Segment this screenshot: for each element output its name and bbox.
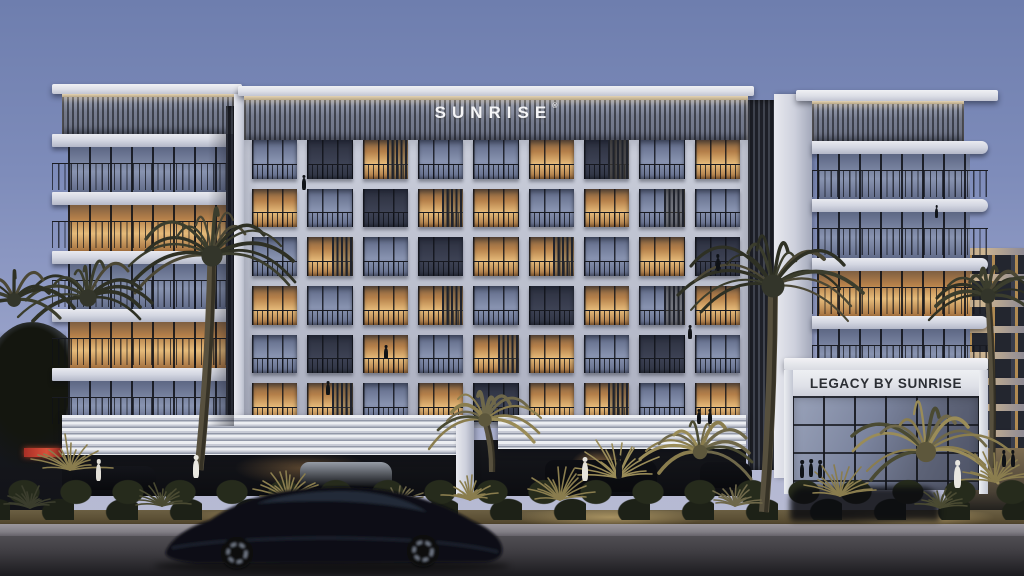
pavilion-roof-slab: [784, 358, 988, 370]
person-head: [818, 460, 822, 464]
balcony-railing: [363, 212, 408, 227]
window-cell: [695, 286, 740, 325]
balcony-slab: [52, 134, 234, 147]
person-figure: [302, 178, 306, 190]
balcony-railing: [812, 170, 988, 197]
person-figure: [1002, 454, 1006, 467]
balcony-floor: [812, 141, 988, 199]
balcony-railing: [307, 310, 352, 325]
window-cell: [418, 140, 463, 179]
window-cell: [418, 335, 463, 374]
person-head: [935, 205, 938, 208]
palm-frond: [14, 272, 43, 300]
person-figure: [616, 460, 622, 479]
balcony-railing: [252, 212, 297, 227]
balcony-railing: [812, 228, 988, 255]
window-cell: [473, 140, 518, 179]
window-cell: [584, 335, 629, 374]
balcony-railing: [307, 164, 352, 179]
balcony-railing: [639, 310, 684, 325]
balcony-railing: [529, 261, 574, 276]
person-head: [688, 325, 691, 328]
window-cell: [418, 237, 463, 276]
window-cell: [473, 286, 518, 325]
window-cell: [363, 286, 408, 325]
window-cell: [639, 140, 684, 179]
balcony-slab: [52, 309, 234, 322]
window-cell: [473, 189, 518, 228]
window-cell: [529, 237, 574, 276]
person-figure: [1011, 454, 1015, 467]
person-figure: [954, 466, 961, 488]
balcony-railing: [52, 280, 234, 307]
balcony-slab: [52, 251, 234, 264]
connector-louvers: [748, 100, 774, 470]
window-cell: [473, 335, 518, 374]
person-figure: [697, 412, 701, 424]
window-cell: [307, 237, 352, 276]
window-cell: [252, 335, 297, 374]
balcony-railing: [363, 358, 408, 373]
balcony-railing: [52, 221, 234, 248]
window-cell: [252, 189, 297, 228]
window-cell: [252, 140, 297, 179]
center-window-grid: [244, 140, 748, 428]
balcony-railing: [252, 261, 297, 276]
road: [0, 536, 1024, 576]
balcony-railing: [307, 358, 352, 373]
balcony-railing: [529, 310, 574, 325]
window-cell: [639, 335, 684, 374]
balcony-railing: [695, 164, 740, 179]
balcony-floor: [52, 251, 234, 309]
balcony-slab: [812, 316, 988, 329]
window-cell: [529, 189, 574, 228]
balcony-railing: [52, 338, 234, 365]
window-cell: [252, 237, 297, 276]
balcony-railing: [418, 310, 463, 325]
balcony-railing: [695, 358, 740, 373]
person-figure: [384, 348, 388, 359]
window-cell: [252, 286, 297, 325]
palm-frond: [0, 300, 14, 327]
palm-frond: [14, 286, 49, 300]
balcony-railing: [418, 164, 463, 179]
balcony-railing: [473, 261, 518, 276]
window-cell: [695, 335, 740, 374]
balcony-railing: [529, 358, 574, 373]
balcony-railing: [52, 163, 234, 190]
podium-slat-band: [62, 415, 456, 455]
roof-sign-text: SUNRISE: [435, 103, 553, 122]
balcony-railing: [529, 212, 574, 227]
window-cell: [695, 189, 740, 228]
balcony-floor: [52, 309, 234, 367]
person-figure: [582, 462, 588, 481]
balcony-floor: [812, 199, 988, 257]
window-cell: [529, 335, 574, 374]
balcony-floor: [812, 258, 988, 316]
background-car-blur: [790, 487, 940, 521]
window-cell: [418, 189, 463, 228]
right-wing-roof-cornice: [796, 90, 998, 101]
balcony-railing: [529, 164, 574, 179]
person-head: [955, 460, 961, 466]
right-wing-parapet-slats: [812, 104, 964, 141]
balcony-railing: [695, 212, 740, 227]
window-cell: [307, 335, 352, 374]
balcony-railing: [473, 358, 518, 373]
window-cell: [639, 237, 684, 276]
balcony-slab: [52, 192, 234, 205]
window-cell: [529, 140, 574, 179]
balcony-railing: [584, 310, 629, 325]
window-cell: [363, 140, 408, 179]
balcony-railing: [639, 358, 684, 373]
balcony-railing: [639, 261, 684, 276]
palm-frond: [0, 282, 14, 300]
window-cell: [584, 286, 629, 325]
person-head: [326, 381, 329, 384]
person-figure: [708, 412, 712, 424]
person-figure: [688, 328, 692, 339]
dusk-building-scene: SUNRISE® LEGACY BY SUNRISE: [0, 0, 1024, 576]
person-figure: [193, 460, 199, 478]
balcony-railing: [307, 261, 352, 276]
person-figure: [716, 258, 720, 271]
window-cell: [695, 140, 740, 179]
window-cell: [363, 189, 408, 228]
balcony-slab: [52, 368, 234, 381]
balcony-railing: [639, 164, 684, 179]
balcony-railing: [418, 261, 463, 276]
window-cell: [473, 237, 518, 276]
window-cell: [584, 189, 629, 228]
balcony-slab: [812, 258, 988, 271]
window-cell: [307, 189, 352, 228]
balcony-floor: [52, 134, 234, 192]
person-head: [384, 345, 387, 348]
red-shop-sign: [24, 448, 62, 457]
balcony-railing: [584, 358, 629, 373]
balcony-railing: [473, 212, 518, 227]
balcony-railing: [252, 358, 297, 373]
window-cell: [307, 140, 352, 179]
balcony-railing: [473, 310, 518, 325]
left-wing-balconies: [52, 134, 234, 426]
palm-crown: [7, 293, 21, 307]
balcony-railing: [473, 164, 518, 179]
balcony-railing: [363, 164, 408, 179]
balcony-railing: [363, 261, 408, 276]
balcony-railing: [307, 212, 352, 227]
roof-sign-mark: ®: [552, 103, 557, 110]
person-head: [617, 455, 622, 460]
balcony-railing: [639, 212, 684, 227]
balcony-railing: [418, 358, 463, 373]
person-figure: [96, 464, 101, 481]
person-head: [809, 459, 813, 463]
balcony-railing: [584, 164, 629, 179]
palm-frond: [0, 293, 14, 311]
balcony-railing: [252, 164, 297, 179]
balcony-railing: [695, 310, 740, 325]
left-wing-roof-cornice: [52, 84, 242, 94]
person-figure: [935, 208, 938, 218]
balcony-railing: [252, 310, 297, 325]
pavilion-fascia: LEGACY BY SUNRISE: [786, 370, 986, 396]
window-cell: [584, 140, 629, 179]
person-head: [800, 460, 804, 464]
window-cell: [639, 189, 684, 228]
balcony-railing: [584, 212, 629, 227]
balcony-floor: [52, 192, 234, 250]
person-head: [583, 457, 588, 462]
palm-frond: [14, 271, 15, 300]
balcony-railing: [363, 310, 408, 325]
entrance-sign: LEGACY BY SUNRISE: [810, 376, 962, 391]
window-cell: [639, 286, 684, 325]
window-cell: [307, 286, 352, 325]
window-cell: [584, 237, 629, 276]
person-figure: [326, 384, 330, 395]
balcony-slab: [812, 141, 988, 154]
window-cell: [529, 286, 574, 325]
balcony-railing: [418, 212, 463, 227]
roof-sign: SUNRISE®: [244, 103, 748, 123]
window-cell: [363, 237, 408, 276]
balcony-slab: [812, 199, 988, 212]
person-head: [194, 455, 199, 460]
left-wing-parapet-slats: [62, 97, 234, 134]
window-cell: [418, 286, 463, 325]
palm-frond: [0, 280, 14, 300]
balcony-railing: [812, 287, 988, 314]
balcony-railing: [584, 261, 629, 276]
center-roof-cornice: [238, 86, 754, 96]
